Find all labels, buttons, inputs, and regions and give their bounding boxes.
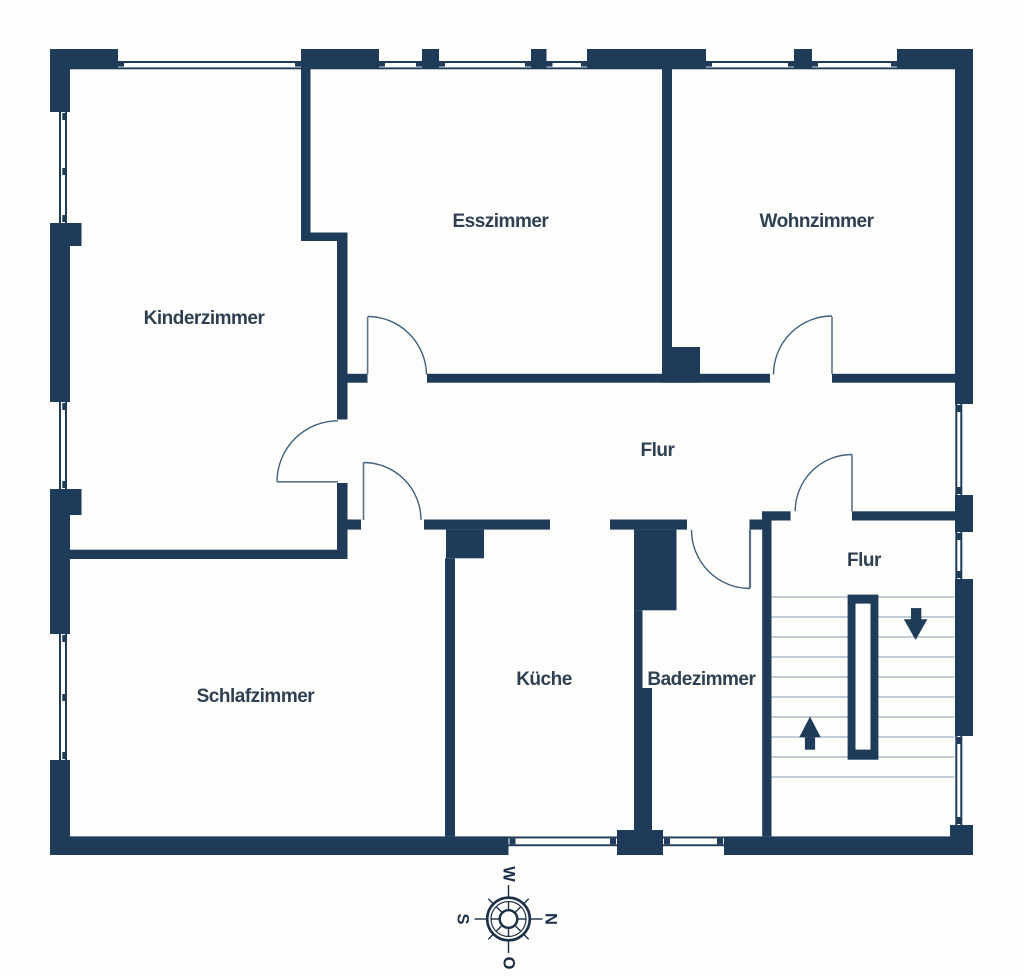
svg-text:Wohnzimmer: Wohnzimmer xyxy=(760,211,875,232)
svg-text:Flur: Flur xyxy=(641,440,676,461)
svg-text:O: O xyxy=(500,957,518,970)
svg-text:Küche: Küche xyxy=(516,669,572,690)
svg-text:Esszimmer: Esszimmer xyxy=(452,211,549,232)
svg-text:S: S xyxy=(454,913,472,924)
svg-text:W: W xyxy=(500,866,518,882)
svg-text:N: N xyxy=(542,913,560,925)
svg-text:Badezimmer: Badezimmer xyxy=(647,669,756,690)
svg-text:Kinderzimmer: Kinderzimmer xyxy=(144,308,266,329)
svg-text:Schlafzimmer: Schlafzimmer xyxy=(197,686,316,707)
svg-text:Flur: Flur xyxy=(847,550,882,571)
